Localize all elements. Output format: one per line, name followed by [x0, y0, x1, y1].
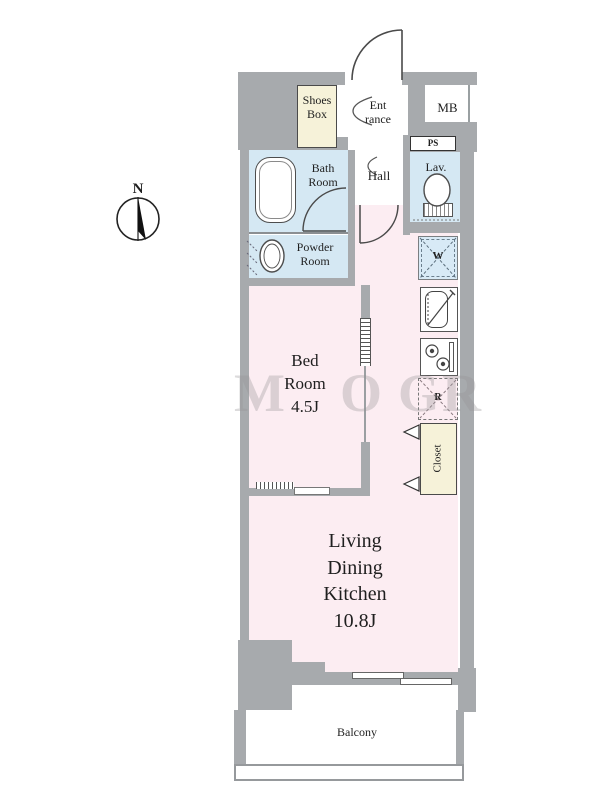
toilet-icon	[413, 174, 459, 220]
ldk-label: Living Dining Kitchen 10.8J	[295, 528, 415, 634]
watermark-letter: O	[340, 366, 382, 420]
mb-label: MB	[425, 100, 470, 115]
ps-label: PS	[410, 138, 456, 149]
bathroom-label: Bath Room	[300, 161, 346, 189]
powder-room-label: Powder Room	[286, 240, 344, 268]
north-compass-icon	[117, 197, 159, 241]
compass-label: N	[128, 181, 148, 199]
floor-plan: N Shoes Box Ent rance MB PS Lav. Hall Ba…	[0, 0, 600, 800]
closet-label: Closet	[432, 423, 445, 493]
watermark-letter: R	[442, 366, 481, 420]
closet-fold-arrows	[404, 425, 419, 491]
watermark-letter: M	[234, 366, 285, 420]
watermark-letter: G	[398, 366, 440, 420]
washer-label: W	[418, 250, 458, 263]
powder-hatch	[247, 241, 258, 276]
entrance-label: Ent rance	[350, 98, 406, 126]
balcony-label: Balcony	[317, 725, 397, 739]
hall-door-arc	[360, 205, 398, 243]
powder-sink-icon	[260, 240, 284, 272]
ldk-size: 10.8J	[295, 608, 415, 635]
entrance-door-arc	[352, 30, 402, 80]
bathroom-door-arc	[303, 188, 346, 231]
shoes-box-label: Shoes Box	[295, 93, 339, 121]
sink-detail	[428, 290, 455, 325]
hall-label: Hall	[357, 168, 401, 183]
lav-label: Lav.	[415, 160, 457, 174]
